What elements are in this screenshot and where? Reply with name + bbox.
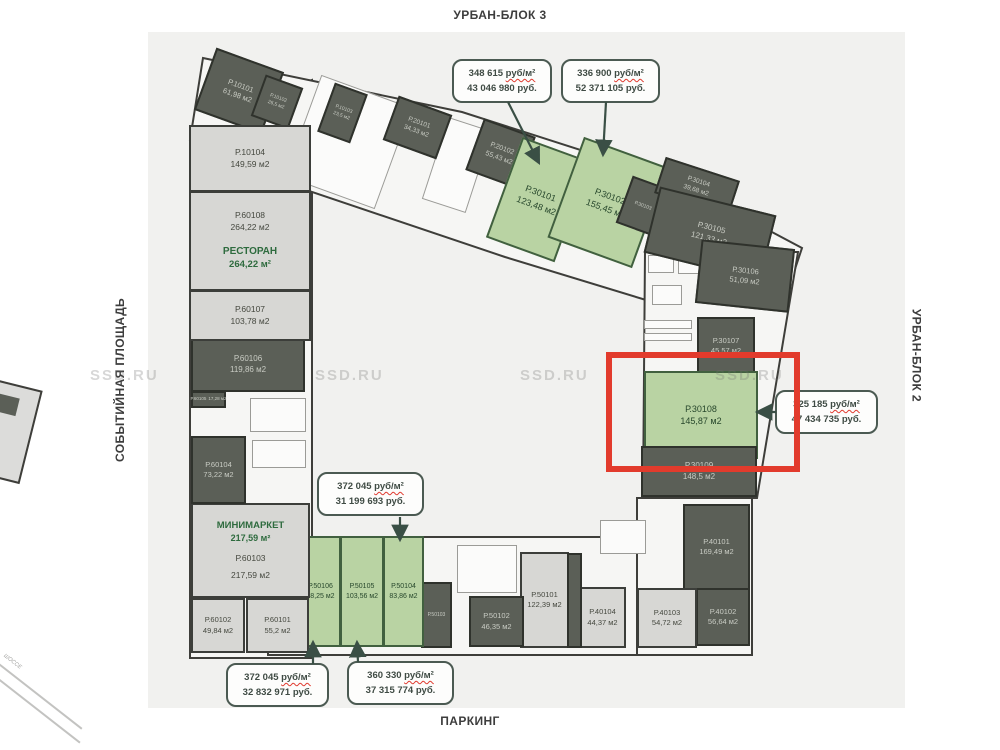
unit-id: Р.30103 bbox=[634, 200, 653, 212]
unit-id: Р.40103 bbox=[654, 608, 681, 618]
unit-id: Р.10104 bbox=[235, 147, 265, 158]
callout-total-line: 32 832 971 руб. bbox=[232, 685, 323, 700]
unit-area: 88,25 м2 bbox=[306, 592, 334, 601]
price-per-m2: 348 615 bbox=[469, 68, 503, 79]
price-callout-r30102: 336 900 руб/м² 52 371 105 руб. bbox=[561, 59, 660, 103]
corridor-room bbox=[250, 398, 306, 432]
price-unit: руб/м² bbox=[404, 670, 434, 681]
price-callout-r30101: 348 615 руб/м² 43 046 980 руб. bbox=[452, 59, 552, 103]
unit-id: Р.50103 bbox=[428, 612, 446, 619]
unit-r40102[interactable]: Р.40102 56,64 м2 bbox=[696, 588, 750, 646]
unit-id: Р.60102 bbox=[205, 615, 232, 625]
unit-id: Р.50105 bbox=[350, 582, 375, 591]
unit-id: Р.50102 bbox=[483, 611, 510, 621]
callout-price-line: 336 900 руб/м² bbox=[567, 66, 654, 81]
unit-area: 17,28 м2 bbox=[208, 396, 226, 402]
ramp-bar bbox=[644, 320, 692, 329]
unit-area: 73,22 м2 bbox=[203, 470, 233, 480]
unit-area: 56,64 м2 bbox=[708, 617, 738, 627]
unit-id: Р.60103 bbox=[235, 553, 265, 564]
unit-area: 148,5 м2 bbox=[683, 472, 715, 483]
callout-price-line: 348 615 руб/м² bbox=[458, 66, 546, 81]
unit-area: 103,78 м2 bbox=[231, 316, 270, 327]
unit-id: Р.50101 bbox=[531, 590, 558, 600]
price-per-m2: 372 045 bbox=[244, 672, 278, 683]
price-unit: руб/м² bbox=[830, 399, 860, 410]
unit-r40103[interactable]: Р.40103 54,72 м2 bbox=[637, 588, 697, 648]
unit-r60103-minimarket[interactable]: МИНИМАРКЕТ 217,59 м² Р.60103 217,59 м2 bbox=[191, 503, 310, 598]
callout-total-line: 31 199 693 руб. bbox=[323, 494, 418, 509]
building-core bbox=[567, 553, 582, 648]
shop-area: 264,22 м² bbox=[229, 259, 271, 272]
unit-id: Р.40102 bbox=[710, 607, 737, 617]
unit-area: 169,49 м2 bbox=[699, 547, 733, 557]
stair-block bbox=[600, 520, 646, 554]
unit-r50103[interactable]: Р.50103 bbox=[421, 582, 452, 648]
price-per-m2: 336 900 bbox=[577, 68, 611, 79]
unit-area: 55,2 м2 bbox=[264, 626, 290, 636]
unit-area: 49,84 м2 bbox=[203, 626, 233, 636]
price-callout-r50106: 372 045 руб/м² 32 832 971 руб. bbox=[226, 663, 329, 707]
unit-id: Р.60101 bbox=[264, 615, 291, 625]
highlight-rectangle bbox=[606, 352, 800, 472]
callout-total-line: 43 046 980 руб. bbox=[458, 81, 546, 96]
unit-r50105[interactable]: Р.50105 103,56 м2 bbox=[340, 536, 384, 647]
shop-name: РЕСТОРАН bbox=[223, 245, 277, 259]
unit-r40101[interactable]: Р.40101 169,49 м2 bbox=[683, 504, 750, 590]
unit-area: 217,59 м2 bbox=[231, 570, 270, 581]
unit-r10104[interactable]: Р.10104 149,59 м2 bbox=[189, 125, 311, 192]
unit-r60107[interactable]: Р.60107 103,78 м2 bbox=[189, 290, 311, 341]
unit-r60108-restaurant[interactable]: Р.60108 264,22 м2 РЕСТОРАН 264,22 м² bbox=[189, 191, 311, 291]
unit-area: 103,56 м2 bbox=[346, 592, 378, 601]
unit-id: Р.50106 bbox=[308, 582, 333, 591]
price-per-m2: 372 045 bbox=[337, 481, 371, 492]
unit-id: Р.60105 bbox=[190, 396, 206, 402]
callout-total-line: 52 371 105 руб. bbox=[567, 81, 654, 96]
unit-area: 149,59 м2 bbox=[231, 159, 270, 170]
watermark: SSD.RU bbox=[520, 367, 589, 384]
floorplan-page: Р.10101 61,98 м2 Р.10102 26,5 м2 Р.10103… bbox=[0, 0, 1000, 750]
shop-area: 217,59 м² bbox=[231, 532, 271, 544]
unit-r40104[interactable]: Р.40104 44,37 м2 bbox=[579, 587, 626, 648]
price-unit: руб/м² bbox=[281, 672, 311, 683]
ramp-bar bbox=[644, 333, 692, 341]
unit-r30106[interactable]: Р.30106 51,09 м2 bbox=[695, 239, 795, 312]
callout-price-line: 360 330 руб/м² bbox=[353, 668, 448, 683]
unit-id: Р.60108 bbox=[235, 210, 265, 221]
unit-id: Р.40101 bbox=[703, 537, 730, 547]
price-unit: руб/м² bbox=[374, 481, 404, 492]
unit-id: Р.60107 bbox=[235, 304, 265, 315]
unit-r50101[interactable]: Р.50101 122,39 м2 bbox=[520, 552, 569, 648]
unit-id: Р.50104 bbox=[391, 582, 416, 591]
callout-price-line: 372 045 руб/м² bbox=[323, 479, 418, 494]
corridor-room bbox=[252, 440, 306, 468]
unit-area: 46,35 м2 bbox=[481, 622, 511, 632]
corridor-room bbox=[652, 285, 682, 305]
unit-r60102[interactable]: Р.60102 49,84 м2 bbox=[191, 598, 245, 653]
unit-id: Р.60106 bbox=[234, 354, 262, 365]
unit-area: 44,37 м2 bbox=[587, 618, 617, 628]
unit-area: 51,09 м2 bbox=[729, 274, 760, 287]
unit-r60106[interactable]: Р.60106 119,86 м2 bbox=[191, 338, 305, 392]
price-unit: руб/м² bbox=[614, 68, 644, 79]
price-callout-r50105: 360 330 руб/м² 37 315 774 руб. bbox=[347, 661, 454, 705]
unit-r60104[interactable]: Р.60104 73,22 м2 bbox=[191, 436, 246, 504]
unit-area: 83,86 м2 bbox=[389, 592, 417, 601]
corridor-room bbox=[457, 545, 517, 593]
unit-r50104[interactable]: Р.50104 83,86 м2 bbox=[383, 536, 424, 647]
unit-r50102[interactable]: Р.50102 46,35 м2 bbox=[469, 596, 524, 647]
watermark: SSD.RU bbox=[315, 367, 384, 384]
price-callout-r50104: 372 045 руб/м² 31 199 693 руб. bbox=[317, 472, 424, 516]
unit-id: Р.40104 bbox=[589, 607, 616, 617]
callout-total-line: 37 315 774 руб. bbox=[353, 683, 448, 698]
price-unit: руб/м² bbox=[506, 68, 536, 79]
watermark: SSD.RU bbox=[90, 367, 159, 384]
unit-area: 54,72 м2 bbox=[652, 618, 682, 628]
unit-area: 122,39 м2 bbox=[527, 600, 561, 610]
unit-id: Р.60104 bbox=[205, 460, 232, 470]
unit-r60101[interactable]: Р.60101 55,2 м2 bbox=[246, 598, 309, 653]
unit-area: 264,22 м2 bbox=[231, 222, 270, 233]
shop-name: МИНИМАРКЕТ bbox=[217, 520, 284, 533]
unit-id: Р.30107 bbox=[713, 336, 740, 346]
unit-r60105[interactable]: Р.60105 17,28 м2 bbox=[191, 391, 226, 408]
callout-price-line: 372 045 руб/м² bbox=[232, 670, 323, 685]
unit-area: 119,86 м2 bbox=[230, 365, 266, 376]
price-per-m2: 360 330 bbox=[367, 670, 401, 681]
